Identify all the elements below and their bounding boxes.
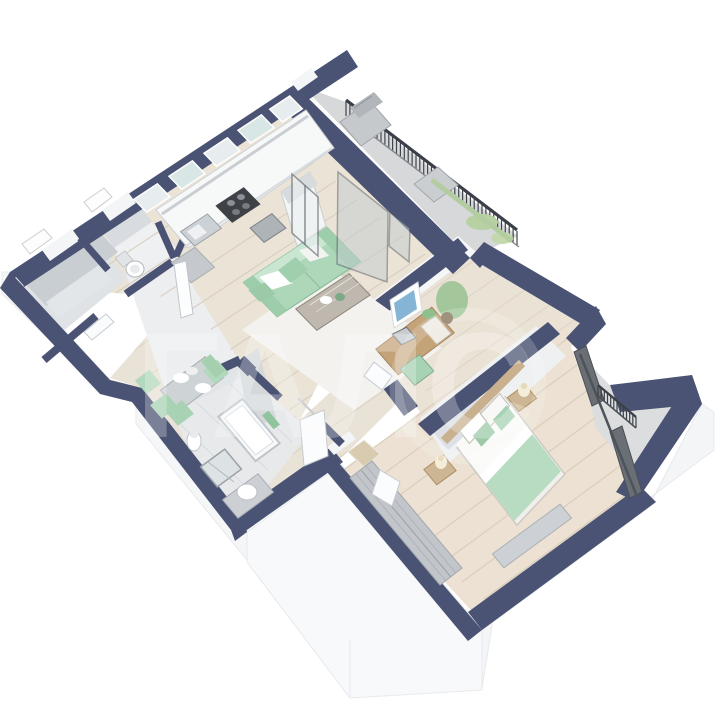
svg-text:ГАЛС: ГАЛС [135,301,534,469]
